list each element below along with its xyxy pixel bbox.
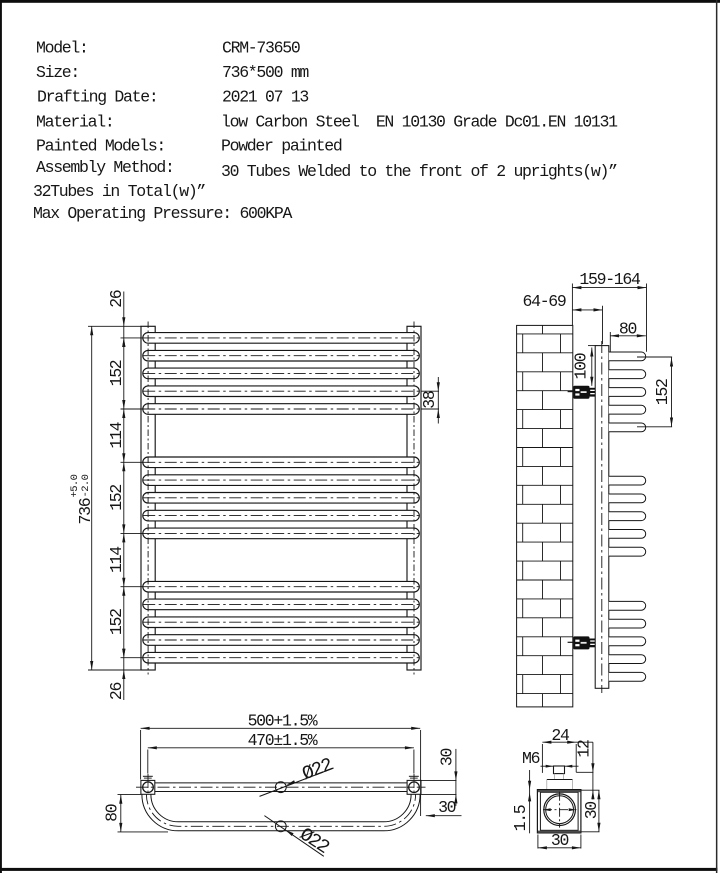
svg-text:Model:: Model: — [36, 39, 88, 58]
svg-text:low Carbon Steel EN 10130 Gra: low Carbon Steel EN 10130 Grade Dc01.EN … — [221, 113, 618, 132]
svg-text:30: 30 — [437, 749, 456, 767]
svg-text:12: 12 — [574, 740, 593, 758]
svg-text:2021 07 13: 2021 07 13 — [222, 88, 308, 107]
svg-text:500+1.5%: 500+1.5% — [248, 711, 318, 730]
svg-text:Painted Models:: Painted Models: — [36, 137, 165, 156]
svg-text:1.5: 1.5 — [511, 805, 530, 831]
svg-text:114: 114 — [107, 421, 126, 448]
svg-text:30: 30 — [551, 831, 569, 850]
svg-text:152: 152 — [107, 485, 126, 511]
svg-text:30: 30 — [582, 802, 601, 820]
svg-text:159-164: 159-164 — [579, 270, 641, 289]
svg-text:Max Operating Pressure: 600KPA: Max Operating Pressure: 600KPA — [33, 204, 292, 223]
svg-text:80: 80 — [619, 320, 637, 339]
svg-text:Material:: Material: — [36, 113, 113, 132]
svg-text:Drafting Date:: Drafting Date: — [37, 88, 157, 107]
svg-text:38: 38 — [420, 391, 439, 409]
svg-text:26: 26 — [107, 290, 126, 308]
svg-text:Assembly Method:: Assembly Method: — [36, 158, 174, 177]
svg-text:30 Tubes Welded to the front o: 30 Tubes Welded to the front of 2 uprigh… — [221, 162, 617, 181]
svg-text:24: 24 — [551, 726, 570, 745]
svg-text:Ø22: Ø22 — [295, 823, 333, 858]
svg-text:-2.0: -2.0 — [80, 474, 92, 497]
svg-text:470±1.5%: 470±1.5% — [248, 731, 318, 750]
svg-text:Ø22: Ø22 — [299, 754, 336, 786]
svg-text:32Tubes in Total(w)”: 32Tubes in Total(w)” — [33, 182, 205, 201]
svg-text:80: 80 — [103, 804, 122, 822]
svg-text:64-69: 64-69 — [522, 292, 565, 311]
svg-text:152: 152 — [653, 379, 672, 405]
svg-text:100: 100 — [571, 353, 590, 379]
svg-text:M6: M6 — [522, 749, 540, 768]
svg-text:152: 152 — [107, 360, 126, 386]
svg-text:Size:: Size: — [36, 63, 79, 82]
svg-text:Powder painted: Powder painted — [221, 137, 342, 156]
svg-text:26: 26 — [107, 683, 126, 701]
svg-text:CRM-73650: CRM-73650 — [222, 39, 300, 58]
svg-text:736*500 mm: 736*500 mm — [222, 63, 309, 82]
svg-text:736: 736 — [76, 498, 95, 524]
svg-text:152: 152 — [107, 609, 126, 635]
svg-text:114: 114 — [107, 546, 126, 573]
svg-text:30: 30 — [438, 798, 456, 817]
